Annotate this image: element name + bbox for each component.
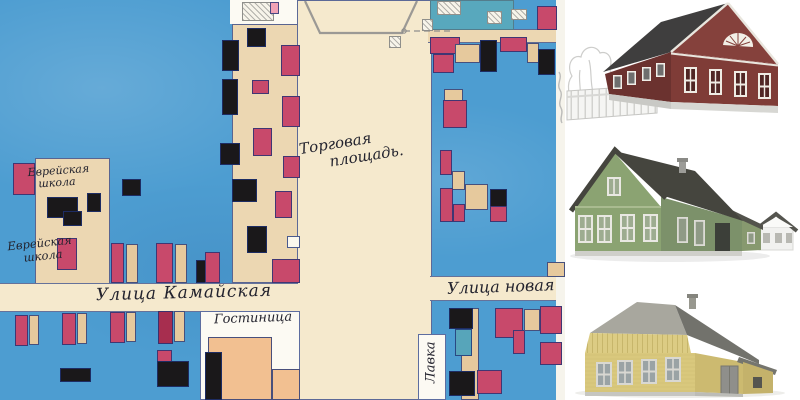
chimney <box>687 294 698 309</box>
side-door <box>721 366 738 394</box>
foundation <box>575 251 742 256</box>
square-pencil-outline <box>305 1 417 33</box>
green-house-rendering <box>565 133 800 265</box>
hand-drawn-town-map: Торговая площадь. Еврейская школа Еврейс… <box>0 0 565 400</box>
yellow-house-rendering <box>565 265 800 400</box>
yellow-house <box>585 294 777 397</box>
pencil-annotations <box>0 0 565 400</box>
screenshot-stage: Торговая площадь. Еврейская школа Еврейс… <box>0 0 800 400</box>
side-door <box>715 223 730 251</box>
label-hotel: Гостиница <box>214 311 293 328</box>
annex-window <box>753 377 762 388</box>
red-house <box>603 3 778 113</box>
red-house-rendering <box>565 0 800 133</box>
green-house <box>571 150 763 256</box>
label-jewish-school-upper: Еврейская школа <box>27 163 90 192</box>
house-renderings-panel <box>565 0 800 400</box>
label-shop: Лавка <box>425 331 440 393</box>
roof-front-slope <box>590 302 687 335</box>
attic-window <box>607 177 621 196</box>
foundation <box>585 392 695 396</box>
margin-pencil-squiggle <box>559 72 562 123</box>
label-street-novaya: Улица новая <box>447 276 555 298</box>
